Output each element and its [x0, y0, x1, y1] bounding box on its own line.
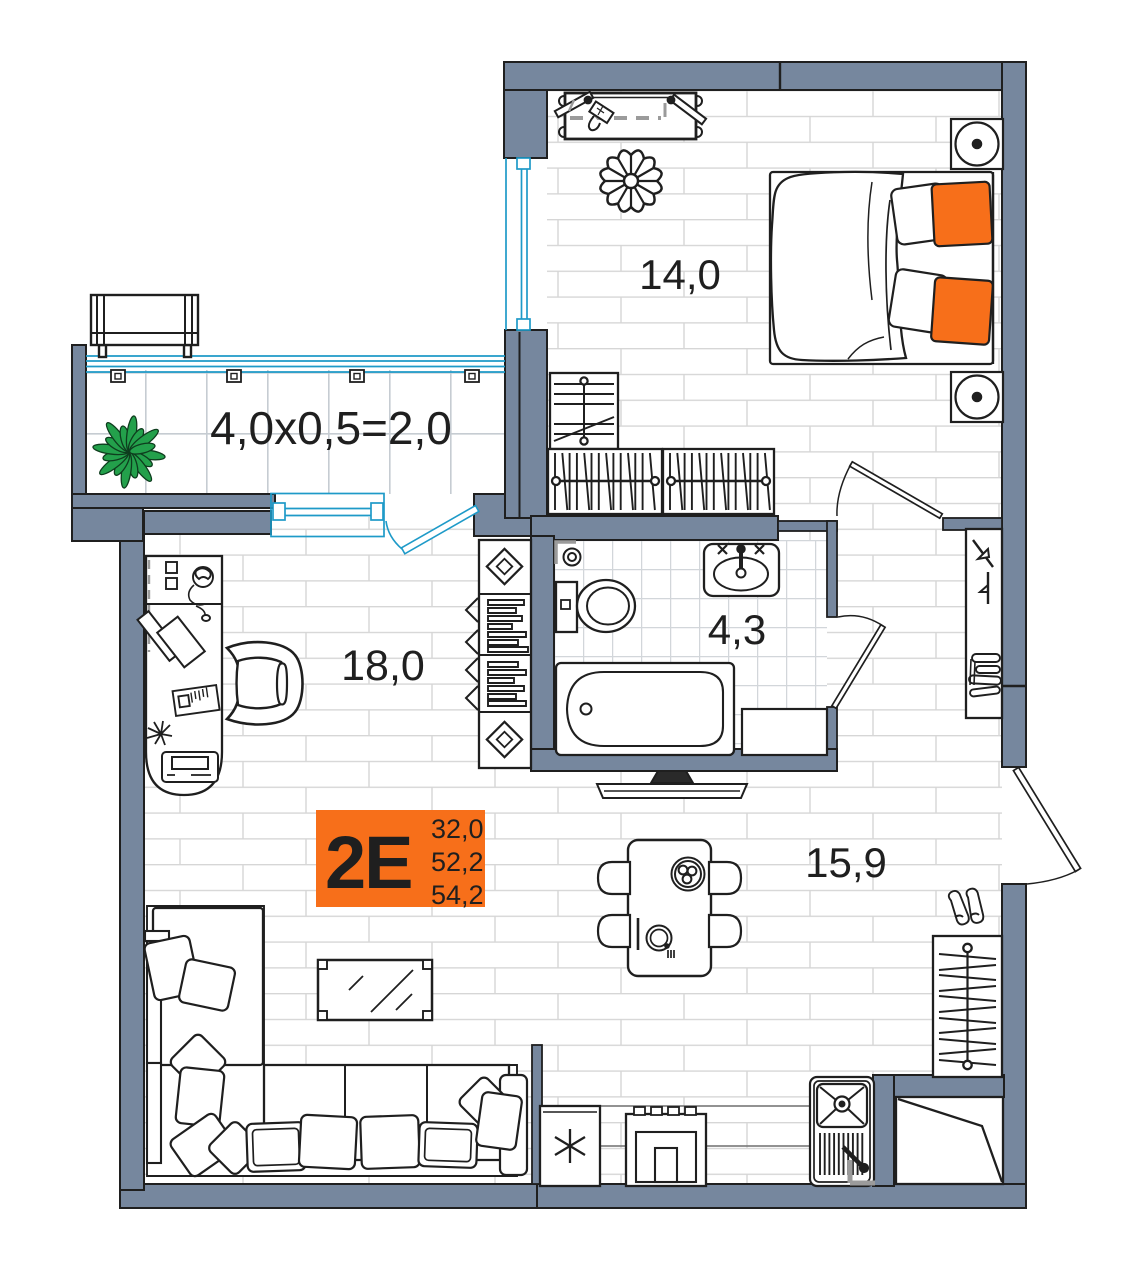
svg-text:54,2: 54,2: [431, 880, 484, 910]
svg-text:2Е: 2Е: [325, 821, 412, 904]
svg-text:14,0: 14,0: [639, 251, 721, 298]
svg-text:32,0: 32,0: [431, 814, 484, 844]
svg-text:15,9: 15,9: [805, 839, 887, 886]
svg-text:4,3: 4,3: [708, 606, 766, 653]
svg-text:18,0: 18,0: [341, 642, 425, 690]
svg-text:52,2: 52,2: [431, 847, 484, 877]
svg-text:4,0x0,5=2,0: 4,0x0,5=2,0: [210, 402, 452, 454]
